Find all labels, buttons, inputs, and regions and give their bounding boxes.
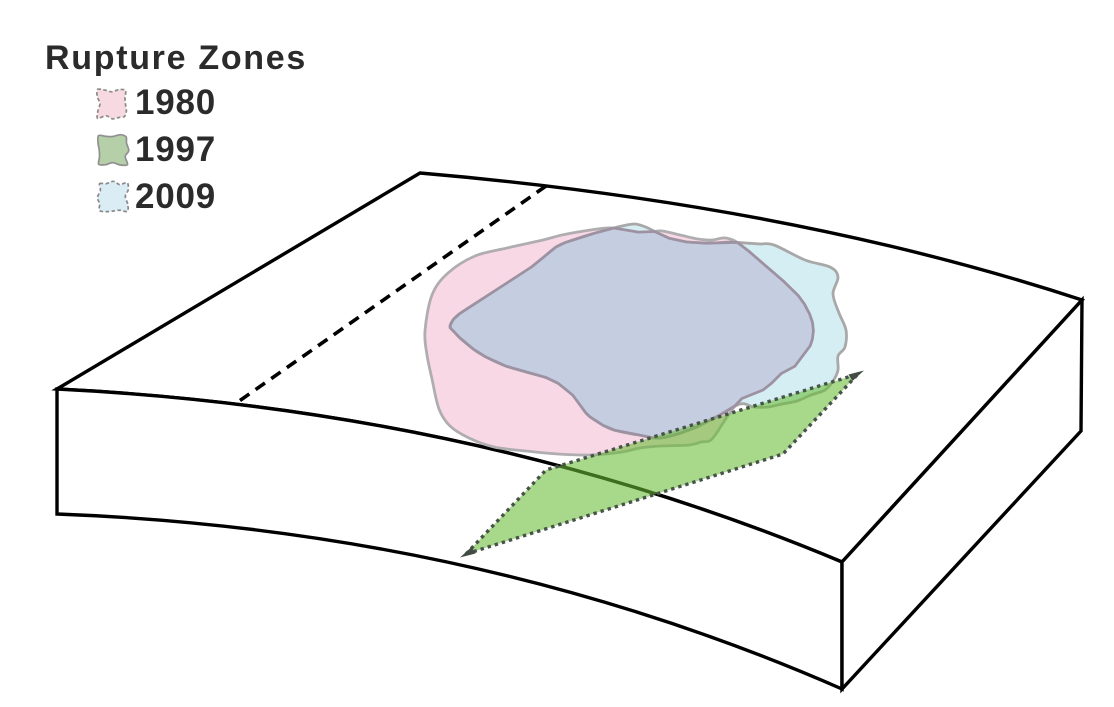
svg-text:1997: 1997 xyxy=(135,130,216,169)
svg-text:1980: 1980 xyxy=(135,83,216,122)
svg-text:Rupture Zones: Rupture Zones xyxy=(45,39,307,77)
svg-text:2009: 2009 xyxy=(135,177,216,216)
